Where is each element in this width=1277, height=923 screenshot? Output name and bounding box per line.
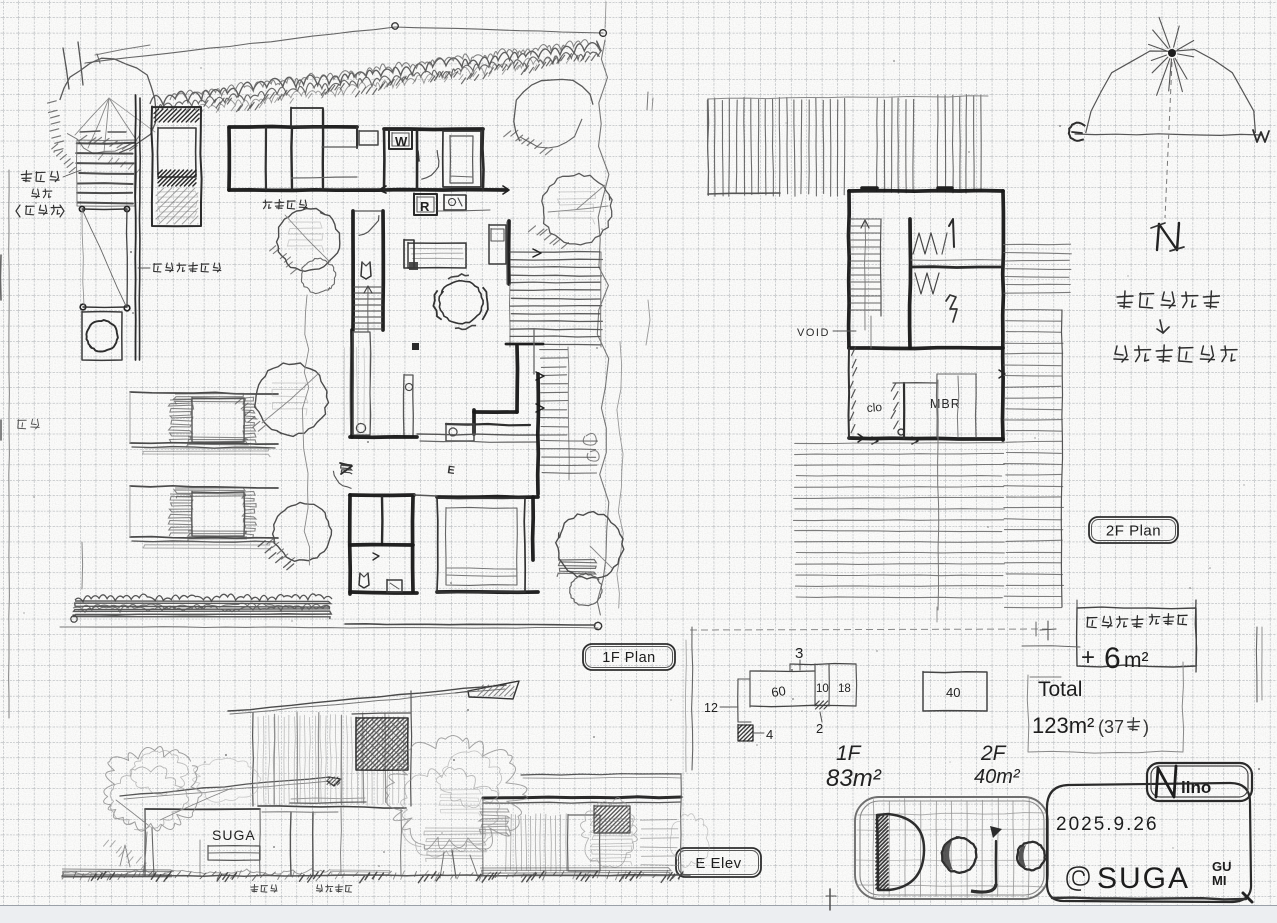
svg-text:E Elev: E Elev — [695, 855, 741, 872]
svg-text:Total: Total — [1038, 678, 1082, 701]
svg-text:2025.9.26: 2025.9.26 — [1056, 814, 1159, 835]
svg-text:3: 3 — [795, 645, 803, 662]
svg-text:SUGA: SUGA — [212, 827, 256, 843]
svg-text:+: + — [1081, 644, 1095, 671]
svg-text:1F Plan: 1F Plan — [602, 650, 655, 666]
svg-text:10: 10 — [816, 683, 829, 695]
svg-text:18: 18 — [838, 683, 851, 695]
svg-text:40: 40 — [946, 685, 960, 700]
svg-text:40m²: 40m² — [974, 766, 1021, 788]
svg-text:2: 2 — [816, 721, 823, 736]
svg-text:MI: MI — [1212, 873, 1226, 888]
svg-text:VOID: VOID — [797, 327, 830, 339]
svg-text:2F: 2F — [980, 742, 1007, 765]
svg-text:R: R — [420, 199, 430, 214]
svg-text:m²: m² — [1124, 649, 1149, 672]
svg-text:83m²: 83m² — [826, 765, 882, 792]
svg-text:2F Plan: 2F Plan — [1106, 522, 1161, 539]
svg-text:SUGA: SUGA — [1097, 862, 1190, 895]
svg-text:123m²: 123m² — [1032, 713, 1094, 738]
svg-text:W: W — [395, 134, 408, 149]
svg-text:): ) — [1143, 717, 1149, 737]
svg-text:iino: iino — [1181, 778, 1211, 797]
svg-text:MBR: MBR — [930, 397, 961, 411]
svg-text:1F: 1F — [836, 742, 862, 765]
svg-text:GU: GU — [1212, 859, 1232, 874]
svg-text:12: 12 — [704, 701, 718, 715]
svg-text:4: 4 — [766, 727, 773, 742]
svg-text:(37: (37 — [1098, 717, 1124, 737]
svg-text:60: 60 — [770, 683, 786, 700]
svg-text:6: 6 — [1104, 642, 1121, 675]
svg-text:clo: clo — [866, 400, 883, 415]
